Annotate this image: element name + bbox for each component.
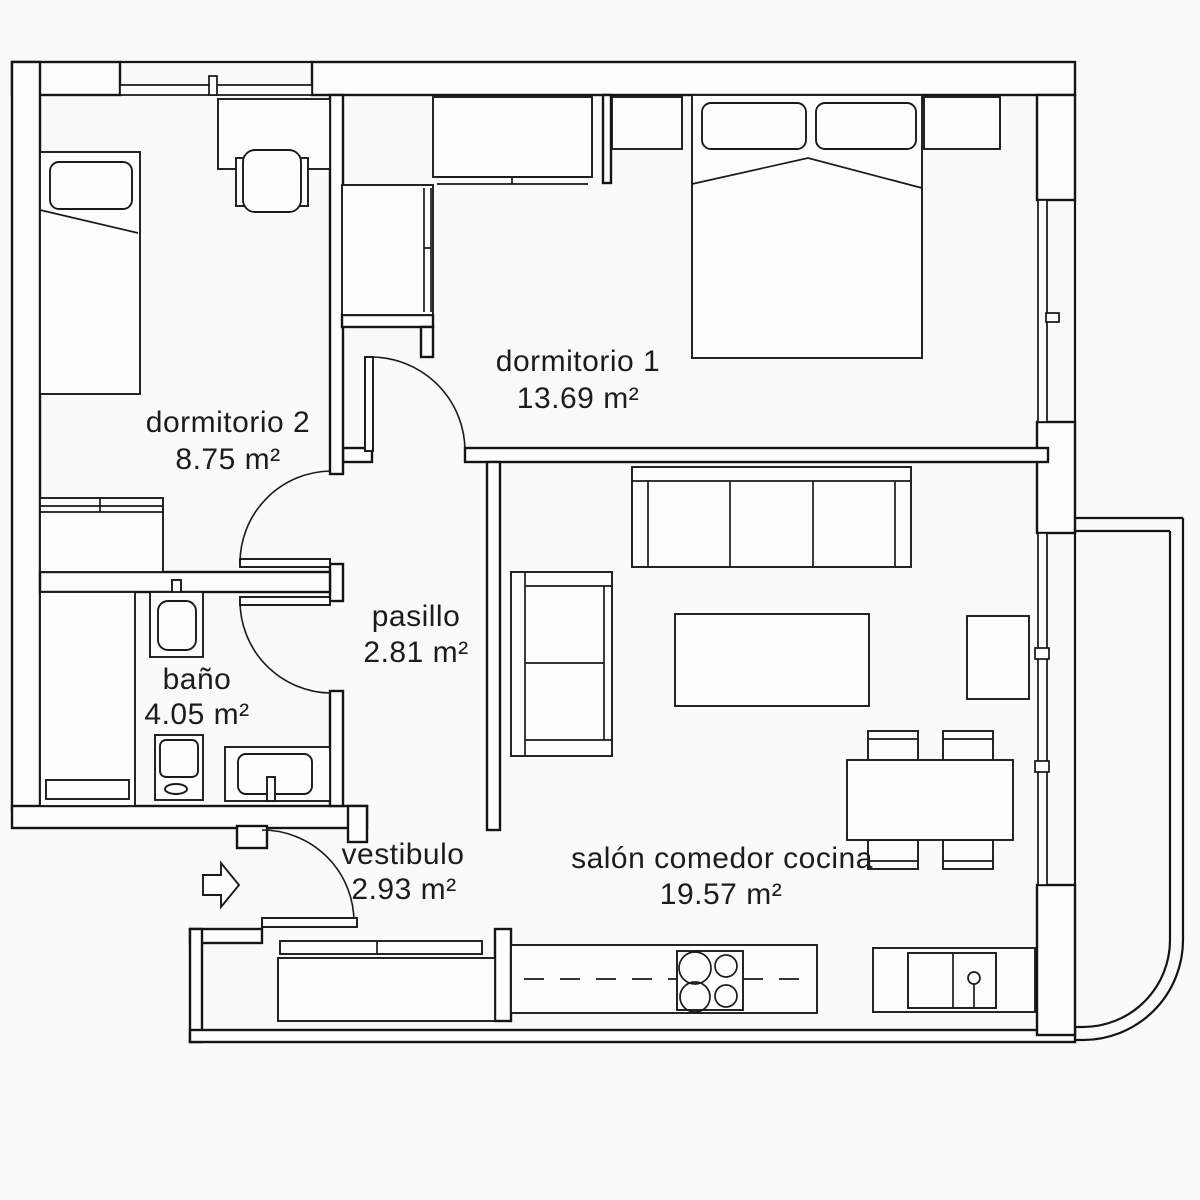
shower xyxy=(40,592,135,806)
room-label-bano: baño xyxy=(163,663,232,696)
toilet-bowl xyxy=(158,601,196,650)
dining-chair xyxy=(868,731,918,761)
kitchen-counter xyxy=(511,945,817,1013)
nightstand-right xyxy=(924,97,1000,149)
room-label-dormitorio2: dormitorio 2 xyxy=(146,406,310,439)
door-leaf-bano xyxy=(240,597,330,605)
washer-handle xyxy=(165,784,187,794)
desk-chair xyxy=(243,150,301,212)
counter-backsplash xyxy=(280,941,482,954)
window-dormitorio1 xyxy=(1038,200,1047,422)
dining-chair xyxy=(868,840,918,869)
floor-plan: dormitorio 2 8.75 m² dormitorio 1 13.69 … xyxy=(0,0,1200,1200)
double-bed-pillow-left xyxy=(702,103,806,149)
kitchen-sink xyxy=(908,953,996,1008)
salon-furniture xyxy=(511,467,1029,869)
door-swing-dormitorio1 xyxy=(371,357,465,451)
kitchen-cabinet-left xyxy=(278,958,495,1021)
floor-plan-page: dormitorio 2 8.75 m² dormitorio 1 13.69 … xyxy=(0,0,1200,1200)
dining-chair xyxy=(943,840,993,869)
door-swing-bano xyxy=(240,601,330,693)
room-label-vestibulo: vestibulo xyxy=(342,838,465,871)
dormitorio1-furniture xyxy=(342,95,1000,358)
room-label-salon: salón comedor cocina xyxy=(571,842,873,875)
washer-door xyxy=(160,740,198,777)
double-bed-pillow-right xyxy=(816,103,916,149)
entry-arrow-icon xyxy=(203,863,239,907)
window-salon xyxy=(1038,533,1047,885)
loveseat xyxy=(511,572,612,756)
window-dormitorio2-mullion xyxy=(209,76,217,95)
shower-step xyxy=(46,780,129,799)
dining-table xyxy=(847,760,1013,840)
door-leaf-entry xyxy=(262,918,357,927)
dormitorio2-wardrobe xyxy=(40,498,163,572)
sofa xyxy=(632,467,911,567)
room-label-pasillo: pasillo xyxy=(372,600,461,633)
single-bed-pillow xyxy=(50,162,132,209)
room-area-bano: 4.05 m² xyxy=(144,698,249,731)
room-label-dormitorio1: dormitorio 1 xyxy=(496,345,660,378)
sink-tap xyxy=(267,777,275,801)
room-area-pasillo: 2.81 m² xyxy=(363,636,468,669)
dormitorio1-closet xyxy=(342,185,433,315)
room-area-dormitorio2: 8.75 m² xyxy=(175,443,280,476)
room-area-dormitorio1: 13.69 m² xyxy=(517,382,639,415)
window-dormitorio1-handle xyxy=(1046,313,1059,322)
side-table xyxy=(967,616,1029,699)
terrace-railing xyxy=(1075,518,1183,1040)
dormitorio1-wardrobe xyxy=(433,97,592,177)
dining-chair xyxy=(943,731,993,761)
door-leaf-dormitorio1 xyxy=(365,357,373,451)
room-area-vestibulo: 2.93 m² xyxy=(351,873,456,906)
coffee-table xyxy=(675,614,869,706)
window-salon-transom1 xyxy=(1035,648,1049,659)
door-leaf-dormitorio2 xyxy=(240,559,330,567)
kitchen xyxy=(278,941,1035,1021)
dormitorio2-furniture xyxy=(40,99,330,572)
window-salon-transom2 xyxy=(1035,761,1049,772)
door-swing-dormitorio2 xyxy=(240,471,330,563)
room-area-salon: 19.57 m² xyxy=(660,878,782,911)
nightstand-left xyxy=(612,97,682,149)
door-swing-entry xyxy=(262,830,354,922)
